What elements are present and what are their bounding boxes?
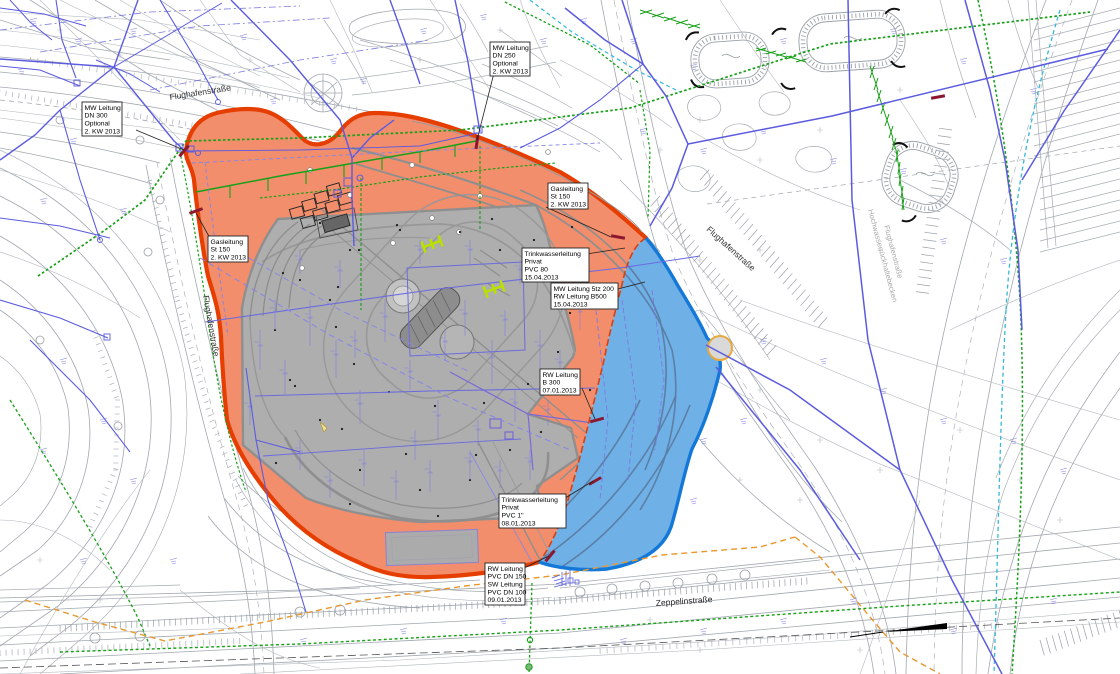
svg-text:MW Leitung 5tz 200: MW Leitung 5tz 200 bbox=[554, 286, 615, 293]
svg-text:Privat: Privat bbox=[525, 259, 542, 266]
svg-text:Gasleitung: Gasleitung bbox=[211, 239, 244, 246]
svg-text:Trinkwasserleitung: Trinkwasserleitung bbox=[502, 497, 559, 504]
svg-text:PVC DN 150: PVC DN 150 bbox=[488, 574, 527, 581]
svg-text:2. KW 2013: 2. KW 2013 bbox=[211, 255, 247, 262]
svg-text:Trinkwasserleitung: Trinkwasserleitung bbox=[525, 251, 582, 258]
svg-text:15.04.2013: 15.04.2013 bbox=[525, 274, 559, 281]
svg-text:MW Leitung: MW Leitung bbox=[493, 45, 529, 52]
svg-text:PVC 1": PVC 1" bbox=[502, 513, 525, 520]
svg-text:RW Leitung: RW Leitung bbox=[543, 372, 579, 379]
svg-text:RW Leitung B500: RW Leitung B500 bbox=[554, 294, 607, 301]
svg-text:SW Leitung: SW Leitung bbox=[488, 582, 523, 589]
svg-text:Optional: Optional bbox=[85, 121, 111, 128]
svg-text:2. KW 2013: 2. KW 2013 bbox=[493, 68, 529, 75]
svg-text:DN 300: DN 300 bbox=[85, 113, 108, 120]
svg-text:PVC 80: PVC 80 bbox=[525, 267, 549, 274]
svg-text:RW Leitung: RW Leitung bbox=[488, 566, 524, 573]
svg-text:St 150: St 150 bbox=[211, 247, 231, 254]
svg-text:Optional: Optional bbox=[493, 61, 519, 68]
svg-text:09.01.2013: 09.01.2013 bbox=[488, 597, 522, 604]
svg-text:B 300: B 300 bbox=[543, 380, 561, 387]
svg-text:2. KW 2013: 2. KW 2013 bbox=[85, 128, 121, 135]
svg-text:2. KW 2013: 2. KW 2013 bbox=[551, 202, 587, 209]
svg-text:PVC DN 100: PVC DN 100 bbox=[488, 589, 527, 596]
svg-text:08.01.2013: 08.01.2013 bbox=[502, 520, 536, 527]
svg-text:07.01.2013: 07.01.2013 bbox=[543, 388, 577, 395]
svg-text:Privat: Privat bbox=[502, 505, 519, 512]
svg-text:St 150: St 150 bbox=[551, 194, 571, 201]
svg-text:MW Leitung: MW Leitung bbox=[85, 105, 121, 112]
svg-text:15.04.2013: 15.04.2013 bbox=[554, 302, 588, 309]
svg-text:Gasleitung: Gasleitung bbox=[551, 186, 584, 193]
svg-text:DN 250: DN 250 bbox=[493, 53, 516, 60]
